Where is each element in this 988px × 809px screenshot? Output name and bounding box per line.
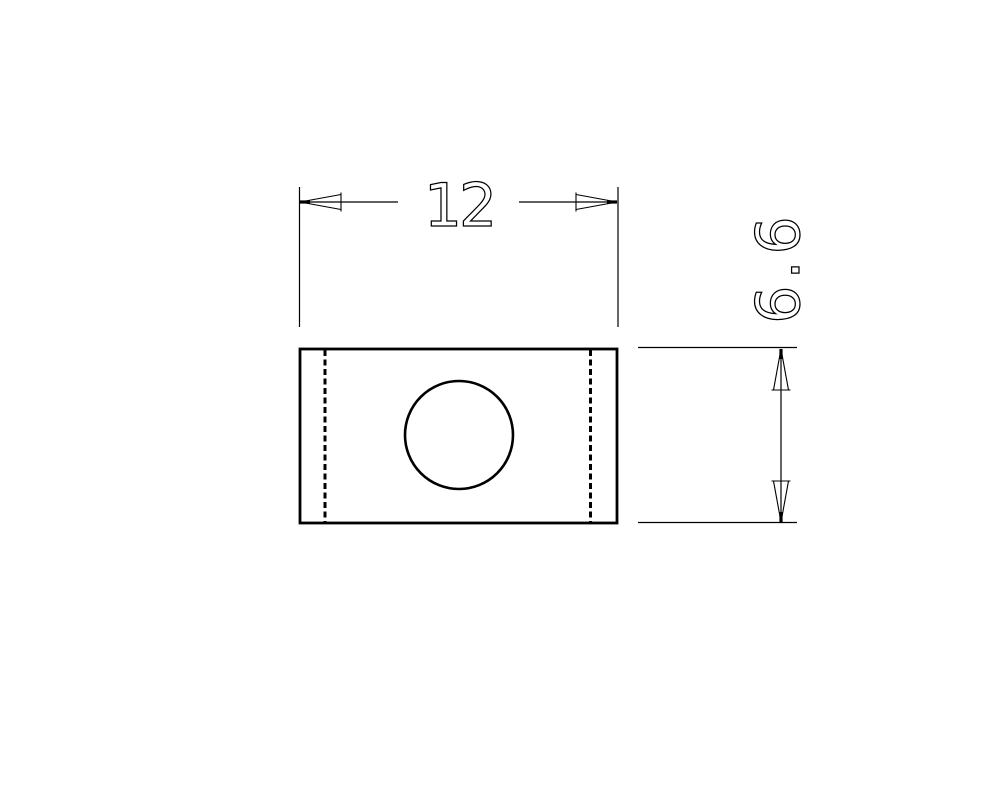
dimension-value-width: 12 — [424, 171, 494, 241]
horizontal-dimension: 12 — [300, 171, 619, 327]
part-outline — [300, 349, 617, 523]
part-view — [300, 349, 617, 523]
hole-circle — [405, 381, 513, 489]
technical-drawing: 12 6.6 — [0, 0, 988, 809]
vertical-dimension: 6.6 — [638, 210, 814, 522]
drawing-canvas: 12 6.6 — [0, 0, 988, 809]
dimension-value-height: 6.6 — [744, 210, 814, 323]
